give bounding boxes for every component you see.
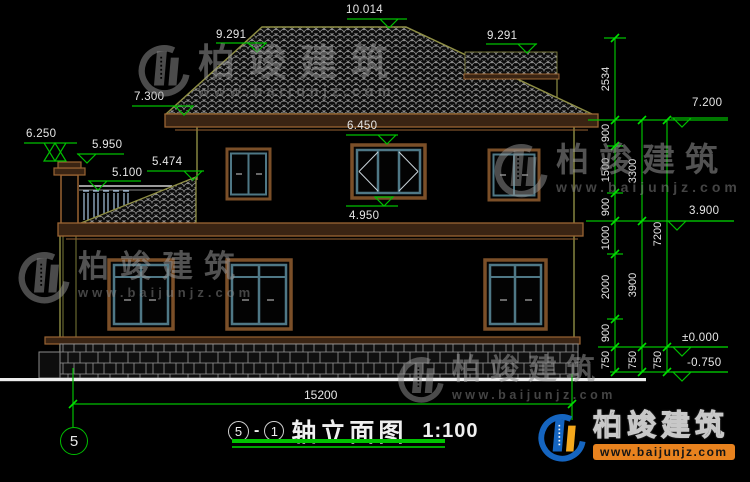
stone-base [39,337,580,378]
axis-bubble-label: 5 [70,433,78,450]
dim-15200: 15200 [304,388,337,402]
dim-750b: 750 [627,351,639,369]
title-underline-thin [232,446,445,448]
eave-fascia [165,114,598,130]
dim-3900: 3900 [627,273,639,297]
dim-1500: 1500 [600,158,612,182]
window-2f-center [352,145,425,198]
level-label-right-eave: 7.200 [692,97,722,109]
level-label-railing: 5.100 [112,167,142,179]
level-label-chimney-top: 6.250 [26,128,56,140]
dim-750c: 750 [652,351,664,369]
ground-line [0,378,646,381]
level-label-ground: ±0.000 [682,332,719,344]
window-1f-left [109,260,173,329]
level-label-foundation: -0.750 [687,357,721,369]
level-label-left-eave: 7.300 [134,91,164,103]
dim-7200: 7200 [652,222,664,246]
dim-900b: 900 [600,198,612,216]
level-label-chimney-cap: 5.950 [92,139,122,151]
level-label-window-sill: 4.950 [349,210,379,222]
level-label-ridge: 10.014 [346,4,383,16]
title-text: 轴立面图 [291,413,407,449]
window-2f-left [227,149,270,199]
level-label-wing-roof: 5.474 [152,156,182,168]
window-1f-mid [227,260,291,329]
window-1f-right [485,260,546,329]
interfloor-band [58,223,583,239]
title-dash: - [254,422,259,440]
dim-2534: 2534 [600,67,612,91]
level-label-left-secondary: 9.291 [216,29,246,41]
title-underline-thick [232,439,445,443]
cad-elevation-canvas: 10.014 9.291 9.291 7.300 6.250 5.950 5.4… [0,0,750,482]
dim-1000: 1000 [600,226,612,250]
level-label-window-head: 6.450 [347,120,377,132]
axis-bubble-5: 5 [60,427,88,455]
dim-900a: 900 [600,124,612,142]
window-2f-right [489,150,539,200]
dim-900c: 900 [600,324,612,342]
drawing-title: 5 - 1 轴立面图 1:100 [228,413,479,449]
dim-750a: 750 [600,351,612,369]
level-label-second-floor: 3.900 [689,205,719,217]
dim-3300: 3300 [627,159,639,183]
title-axis-to: 1 [264,421,284,441]
elevation-drawing [0,0,750,482]
dim-2000: 2000 [600,275,612,299]
level-label-right-secondary: 9.291 [487,30,517,42]
